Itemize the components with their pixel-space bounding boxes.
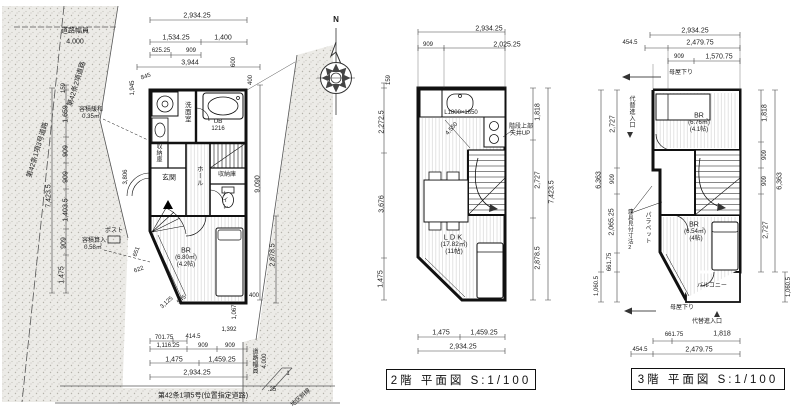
dim-label: 1,818 <box>535 103 542 121</box>
room-label-storage-right: 収納庫 <box>218 172 236 178</box>
dim-label: 159 <box>386 75 392 85</box>
kitchen-counter-note: L1800×1650 <box>444 110 478 116</box>
arrow-up-icon <box>714 311 720 317</box>
dim-label: 1,400 <box>214 35 232 42</box>
dim-label: 6,363 <box>596 171 603 189</box>
room-label-entry: 玄関 <box>162 175 176 182</box>
dim-label: 661.75 <box>607 253 613 271</box>
volume-note-2-label: 容積算入 <box>82 238 106 244</box>
room-label-ub: UB <box>213 119 222 126</box>
dim-label: 1,459.25 <box>470 330 497 337</box>
plan-linework <box>0 0 805 413</box>
dim-label: 1,060.5 <box>594 276 600 296</box>
stair-ceiling-note-1: 階段上部 <box>509 124 533 130</box>
dim-label: 661.75 <box>665 332 683 338</box>
dim-label: 909 <box>674 54 684 60</box>
room-label-br1-area: (6.76㎡) <box>688 120 710 126</box>
dim-label: 2,934.25 <box>183 370 210 377</box>
dim-label: 1,945 <box>130 80 136 95</box>
dim-label: 7,423.5 <box>549 180 556 203</box>
roof-slope-note-top: 母屋下り <box>669 70 693 76</box>
room-label-br1: BR <box>694 113 704 120</box>
dim-label: 3,944 <box>181 60 199 67</box>
fitting-dimension-note: 建具見付寸法2 <box>626 209 632 252</box>
dim-label: 2,025.25 <box>493 42 520 49</box>
dim-label: 1,459.25 <box>208 357 235 364</box>
dim-label: 2,479.75 <box>686 40 713 47</box>
dim-label: 2,727 <box>763 221 770 239</box>
room-label-br1f: BR <box>181 248 191 255</box>
dim-label: 909 <box>762 150 768 160</box>
room-label-balcony: バルコニー <box>697 283 727 289</box>
dim-label: 1,067 <box>232 304 238 319</box>
caption-3f: 3階 平面図 S:1/100 <box>631 368 785 390</box>
post-label: ポスト <box>105 228 123 234</box>
dim-label: 2,934.25 <box>475 26 502 33</box>
dim-label: 2,878.5 <box>535 246 542 269</box>
dim-label: 3,806 <box>123 169 129 184</box>
alternate-entry-note-left: 代替進入口 <box>628 96 634 129</box>
caption-2f: 2階 平面図 S:1/100 <box>386 369 536 390</box>
stair-ceiling-note-2: 天井UP <box>510 131 530 137</box>
dim-label: 1,060.5 <box>786 277 792 297</box>
dim-label: 1,475 <box>165 357 183 364</box>
dim-label: 1,403.5 <box>63 198 70 221</box>
dim-label: 625.25 <box>152 48 170 54</box>
dim-label: 1,475 <box>378 270 385 288</box>
dim-label: 909 <box>63 145 70 157</box>
dim-label: 2,934.25 <box>449 344 476 351</box>
dim-label: 159 <box>61 83 67 93</box>
north-label: N <box>333 16 339 24</box>
road-width-bottom-label: 道路幅員 <box>251 348 257 374</box>
road-width-bottom-value: 4.000 <box>262 353 268 368</box>
dim-label: 1,392 <box>221 327 236 333</box>
dim-label: 2,479.75 <box>685 347 712 354</box>
dim-label: 909 <box>61 237 68 249</box>
dim-label: 2,065.25 <box>609 208 616 235</box>
dim-label: 1,534.25 <box>162 35 189 42</box>
floor-plan-sheet: N 道路幅員 4.000 第42条1項3号道路 第42条2項道路 道路幅員 4.… <box>0 0 805 413</box>
room-label-br2-tatami: (4帖) <box>689 236 702 242</box>
road-width-top-label: 道路幅員 <box>61 28 89 35</box>
room-label-br1f-tatami: (4.2帖) <box>177 262 195 268</box>
room-label-washroom: 洗面室 <box>183 102 190 123</box>
slope-rise-label: 1 <box>286 371 289 377</box>
dim-label: 1,818 <box>713 331 731 338</box>
road-width-top-value: 4.000 <box>66 39 84 46</box>
room-label-ldk: LDK <box>444 233 465 241</box>
dim-label: 909 <box>198 343 208 349</box>
dim-label: 7,423.5 <box>46 184 53 207</box>
dim-label: 909 <box>225 343 235 349</box>
dim-label: 909 <box>762 176 768 186</box>
caption-2f-text: 2階 平面図 S:1/100 <box>391 372 531 388</box>
room-label-toilet: トイレ <box>221 190 227 210</box>
dim-label: 909 <box>63 171 70 183</box>
dim-label: 400 <box>248 75 254 85</box>
dim-label: 9,090 <box>255 175 262 193</box>
dim-label: 1,818 <box>762 104 769 122</box>
dim-label: 600 <box>231 57 237 67</box>
dim-label: 2,727 <box>535 171 542 189</box>
dim-label: 2,272.5 <box>379 110 386 133</box>
volume-note-2-value: 0.58㎡ <box>84 245 102 251</box>
third-floor-plan <box>622 74 740 318</box>
dim-label: 414.5 <box>185 334 200 340</box>
dim-label: 1,475 <box>59 266 66 284</box>
dim-label: 1,659 <box>63 105 70 123</box>
roof-slope-note-bottom: 母屋下り <box>670 305 694 311</box>
dim-label: 1,475 <box>432 330 450 337</box>
dim-label: 909 <box>186 48 196 54</box>
slope-run-label: .25 <box>268 387 276 393</box>
dim-label: 454.5 <box>632 347 647 353</box>
room-label-hall: ホール <box>195 166 202 187</box>
room-label-br1-tatami: (4.1帖) <box>690 127 708 133</box>
dim-label: 454.5 <box>622 40 637 46</box>
dim-label: 6,363 <box>777 172 784 190</box>
second-floor-plan <box>418 88 514 300</box>
dim-label: 1,116.25 <box>157 343 180 349</box>
arrow-down-icon <box>627 132 633 138</box>
dim-label: 909 <box>610 174 616 184</box>
designated-road-note: 第42条1項5号(位置指定道路) <box>158 393 248 400</box>
dim-label: 3,676 <box>379 195 386 213</box>
dim-label: 2,934.25 <box>681 28 708 35</box>
room-label-br1f-area: (6.80㎡) <box>175 255 197 261</box>
room-label-br2-area: (6.54㎡) <box>684 229 706 235</box>
dim-label: 2,934.25 <box>183 13 210 20</box>
parapet-note: パラペット <box>644 212 650 245</box>
dim-label: 2,878.5 <box>270 243 277 266</box>
dim-label: 1,570.75 <box>705 54 732 61</box>
dim-label: 400 <box>249 293 259 299</box>
room-label-br2: BR <box>689 222 699 229</box>
caption-3f-text: 3階 平面図 S:1/100 <box>638 371 778 387</box>
alternate-entry-note-bottom: 代替進入口 <box>692 319 722 325</box>
volume-note-1-label: 容積緩和 <box>79 107 103 113</box>
dim-label: 701.75 <box>155 335 173 341</box>
room-label-ldk-tatami: (11帖) <box>445 249 463 256</box>
room-label-ub-size: 1216 <box>211 126 224 132</box>
volume-note-1-value: 0.35㎡ <box>82 114 100 120</box>
dim-label: 2,727 <box>610 115 617 133</box>
room-label-storage-left: 収納庫 <box>155 143 161 163</box>
dim-label: 909 <box>423 42 433 48</box>
